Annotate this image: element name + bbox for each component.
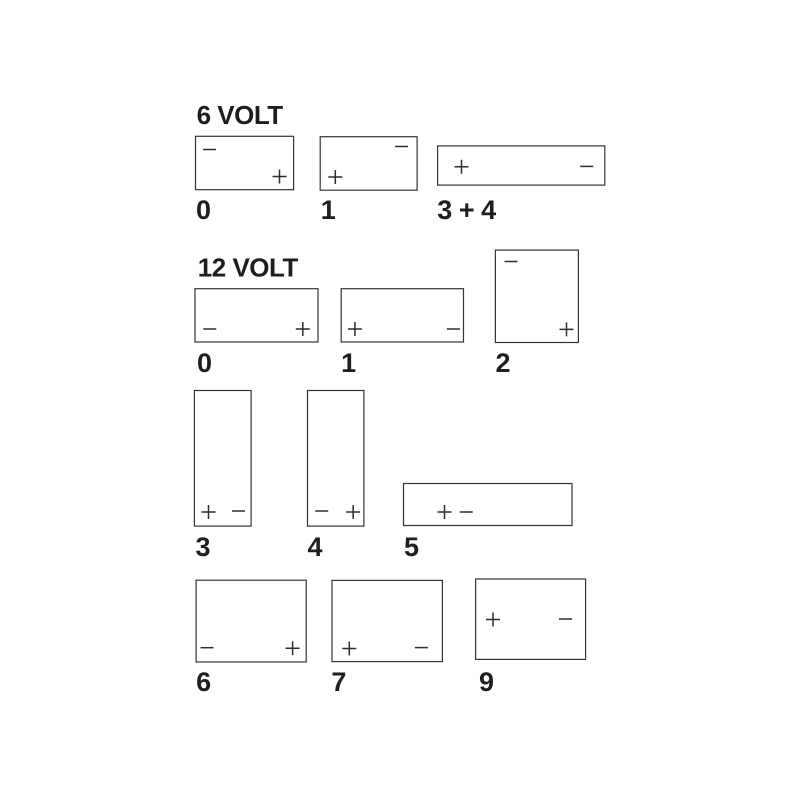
svg-text:7: 7 — [331, 667, 346, 697]
svg-text:2: 2 — [496, 348, 511, 378]
svg-text:9: 9 — [479, 667, 494, 697]
svg-text:0: 0 — [196, 195, 211, 225]
svg-text:12 VOLT: 12 VOLT — [198, 253, 299, 283]
svg-text:3: 3 — [196, 532, 211, 562]
svg-text:1: 1 — [341, 348, 356, 378]
svg-text:6 VOLT: 6 VOLT — [197, 100, 284, 130]
svg-text:3 + 4: 3 + 4 — [437, 195, 496, 225]
svg-text:5: 5 — [404, 532, 419, 562]
svg-text:1: 1 — [321, 195, 336, 225]
svg-text:0: 0 — [197, 348, 212, 378]
svg-text:4: 4 — [308, 532, 323, 562]
svg-text:6: 6 — [196, 667, 211, 697]
